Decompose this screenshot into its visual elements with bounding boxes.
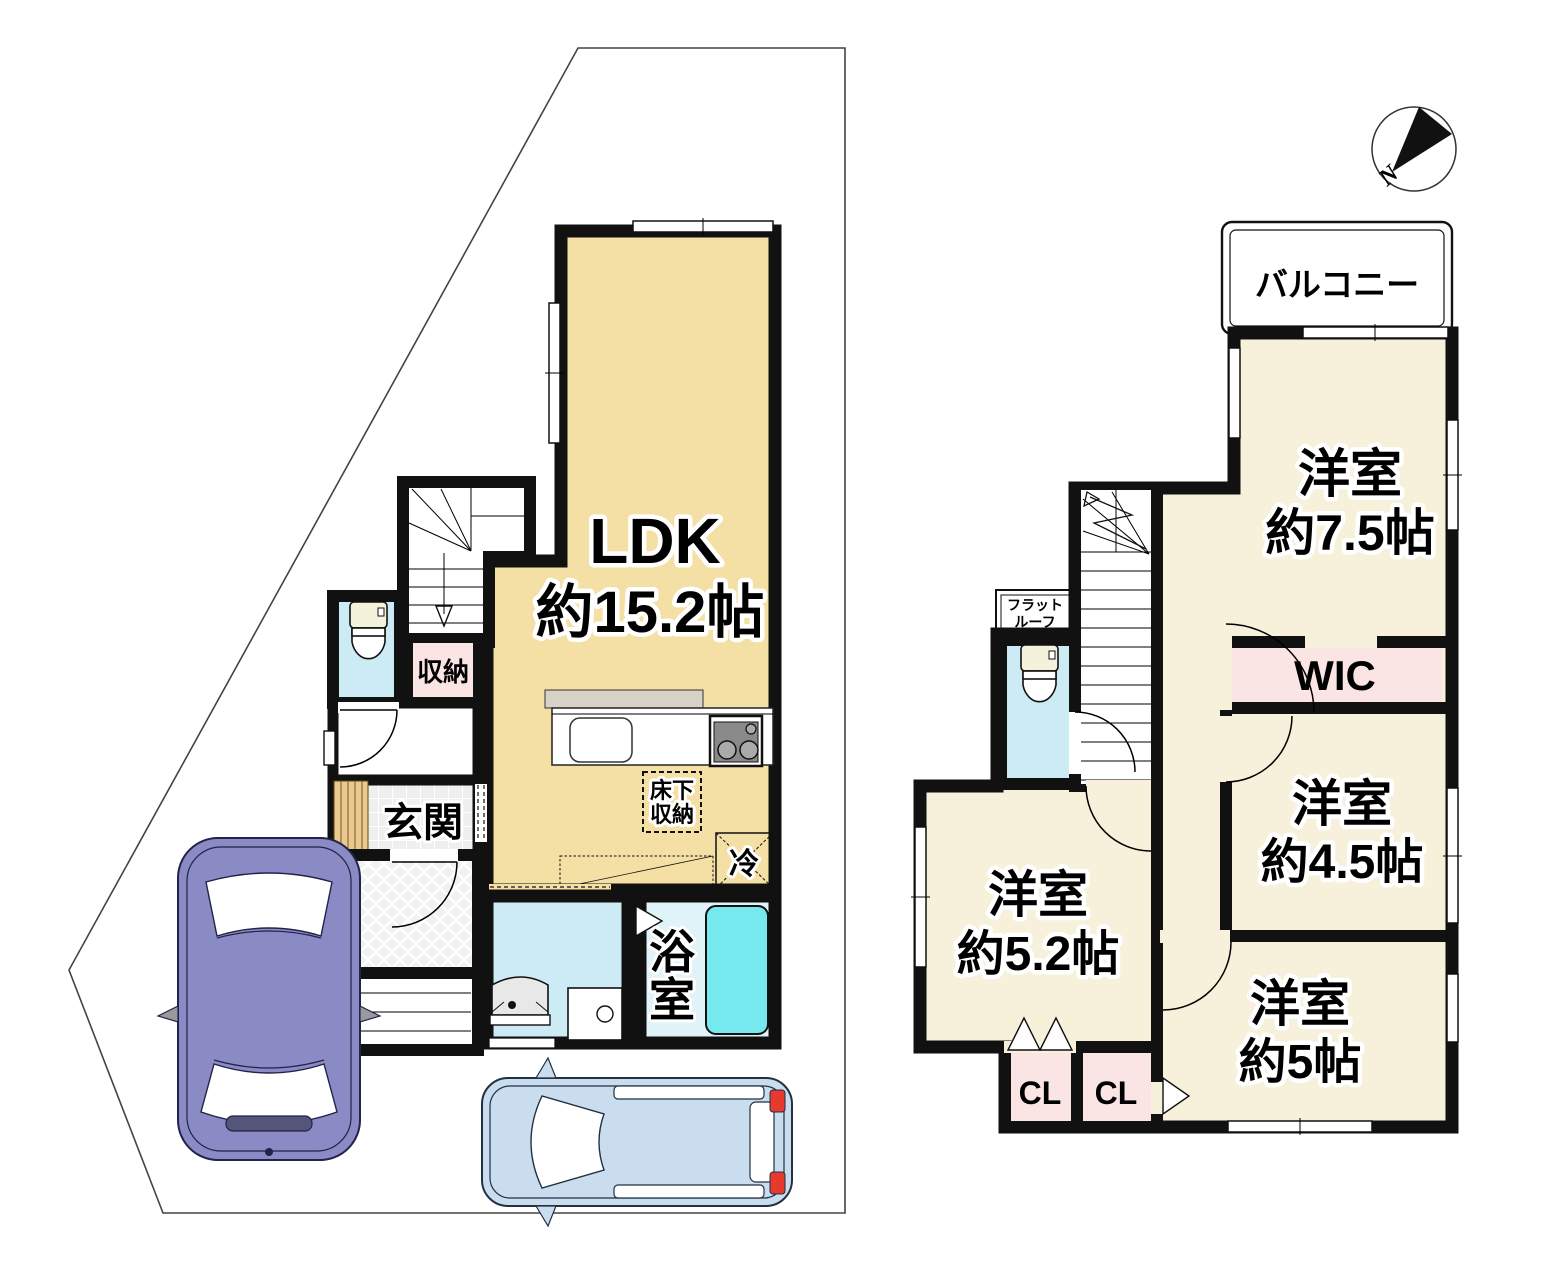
van-mirror-right — [536, 1206, 556, 1226]
toilet-icon-2f — [1021, 645, 1058, 702]
washroom — [487, 896, 628, 1048]
stove-icon — [710, 716, 762, 766]
stairs-2f — [1081, 490, 1151, 784]
bathtub-icon — [706, 906, 768, 1034]
floorplan-page: 床下 収納 冷 — [0, 0, 1541, 1272]
fridge-label: 冷 — [729, 848, 759, 881]
vanity-sink-icon — [490, 977, 550, 1025]
underfloor-label-2: 収納 — [650, 802, 694, 827]
washroom-window — [489, 1038, 555, 1048]
car-sedan — [158, 838, 380, 1160]
room52-size-label: 約5.2帖 — [957, 928, 1120, 981]
floorplan-canvas: 床下 収納 冷 — [0, 0, 1541, 1272]
underfloor-storage: 床下 収納 — [643, 772, 701, 832]
van-taillight-top — [770, 1090, 785, 1112]
hall-window — [324, 731, 335, 765]
van-side-window-top — [614, 1086, 764, 1099]
ldk-size-label: 約15.2帖 — [536, 580, 765, 645]
balcony: バルコニー — [1222, 222, 1452, 334]
storage-label: 収納 — [417, 657, 469, 687]
room75-name-label: 洋室 — [1298, 446, 1402, 504]
entrance-label: 玄関 — [383, 801, 463, 845]
room45-size-label: 約4.5帖 — [1261, 836, 1424, 889]
bath-label-1: 浴 — [649, 926, 696, 978]
hallway-1f — [324, 702, 478, 780]
sedan-windshield — [201, 1064, 337, 1124]
first-floor-plan: 床下 収納 冷 — [324, 218, 775, 1050]
room75-size-label: 約7.5帖 — [1265, 505, 1435, 561]
van-side-window-bottom — [614, 1185, 764, 1198]
bath-label-2: 室 — [649, 974, 695, 1026]
van-rear-window — [750, 1102, 774, 1182]
washing-machine-icon — [568, 988, 622, 1040]
bathroom: 浴 室 — [636, 896, 775, 1043]
flat-roof: フラット ルーフ — [996, 590, 1074, 634]
compass-icon: N — [1372, 107, 1456, 192]
toilet-icon — [350, 602, 387, 659]
entrance-room: 玄関 — [333, 780, 487, 855]
balcony-label: バルコニー — [1255, 266, 1419, 303]
room5-name-label: 洋室 — [1250, 976, 1350, 1032]
flatroof-label-1: フラット — [1007, 597, 1063, 613]
room5-size-label: 約5帖 — [1239, 1036, 1362, 1089]
kitchen-back-counter — [545, 690, 703, 708]
toilet-room-1f — [333, 596, 400, 703]
sedan-grille — [226, 1116, 312, 1131]
underfloor-label-1: 床下 — [650, 778, 694, 803]
storage-room: 収納 — [408, 638, 478, 702]
room52-name-label: 洋室 — [988, 867, 1088, 923]
kitchen-sink-icon — [570, 718, 632, 762]
closet1-label: CL — [1019, 1075, 1062, 1111]
second-floor-plan: バルコニー フラット ルーフ — [911, 222, 1462, 1135]
van-taillight-bottom — [770, 1172, 785, 1194]
room45-name-label: 洋室 — [1292, 776, 1392, 832]
sedan-rear-window — [206, 873, 332, 936]
closet2-label: CL — [1095, 1075, 1138, 1111]
ldk-name-label: LDK — [589, 505, 721, 577]
car-van — [482, 1058, 792, 1226]
